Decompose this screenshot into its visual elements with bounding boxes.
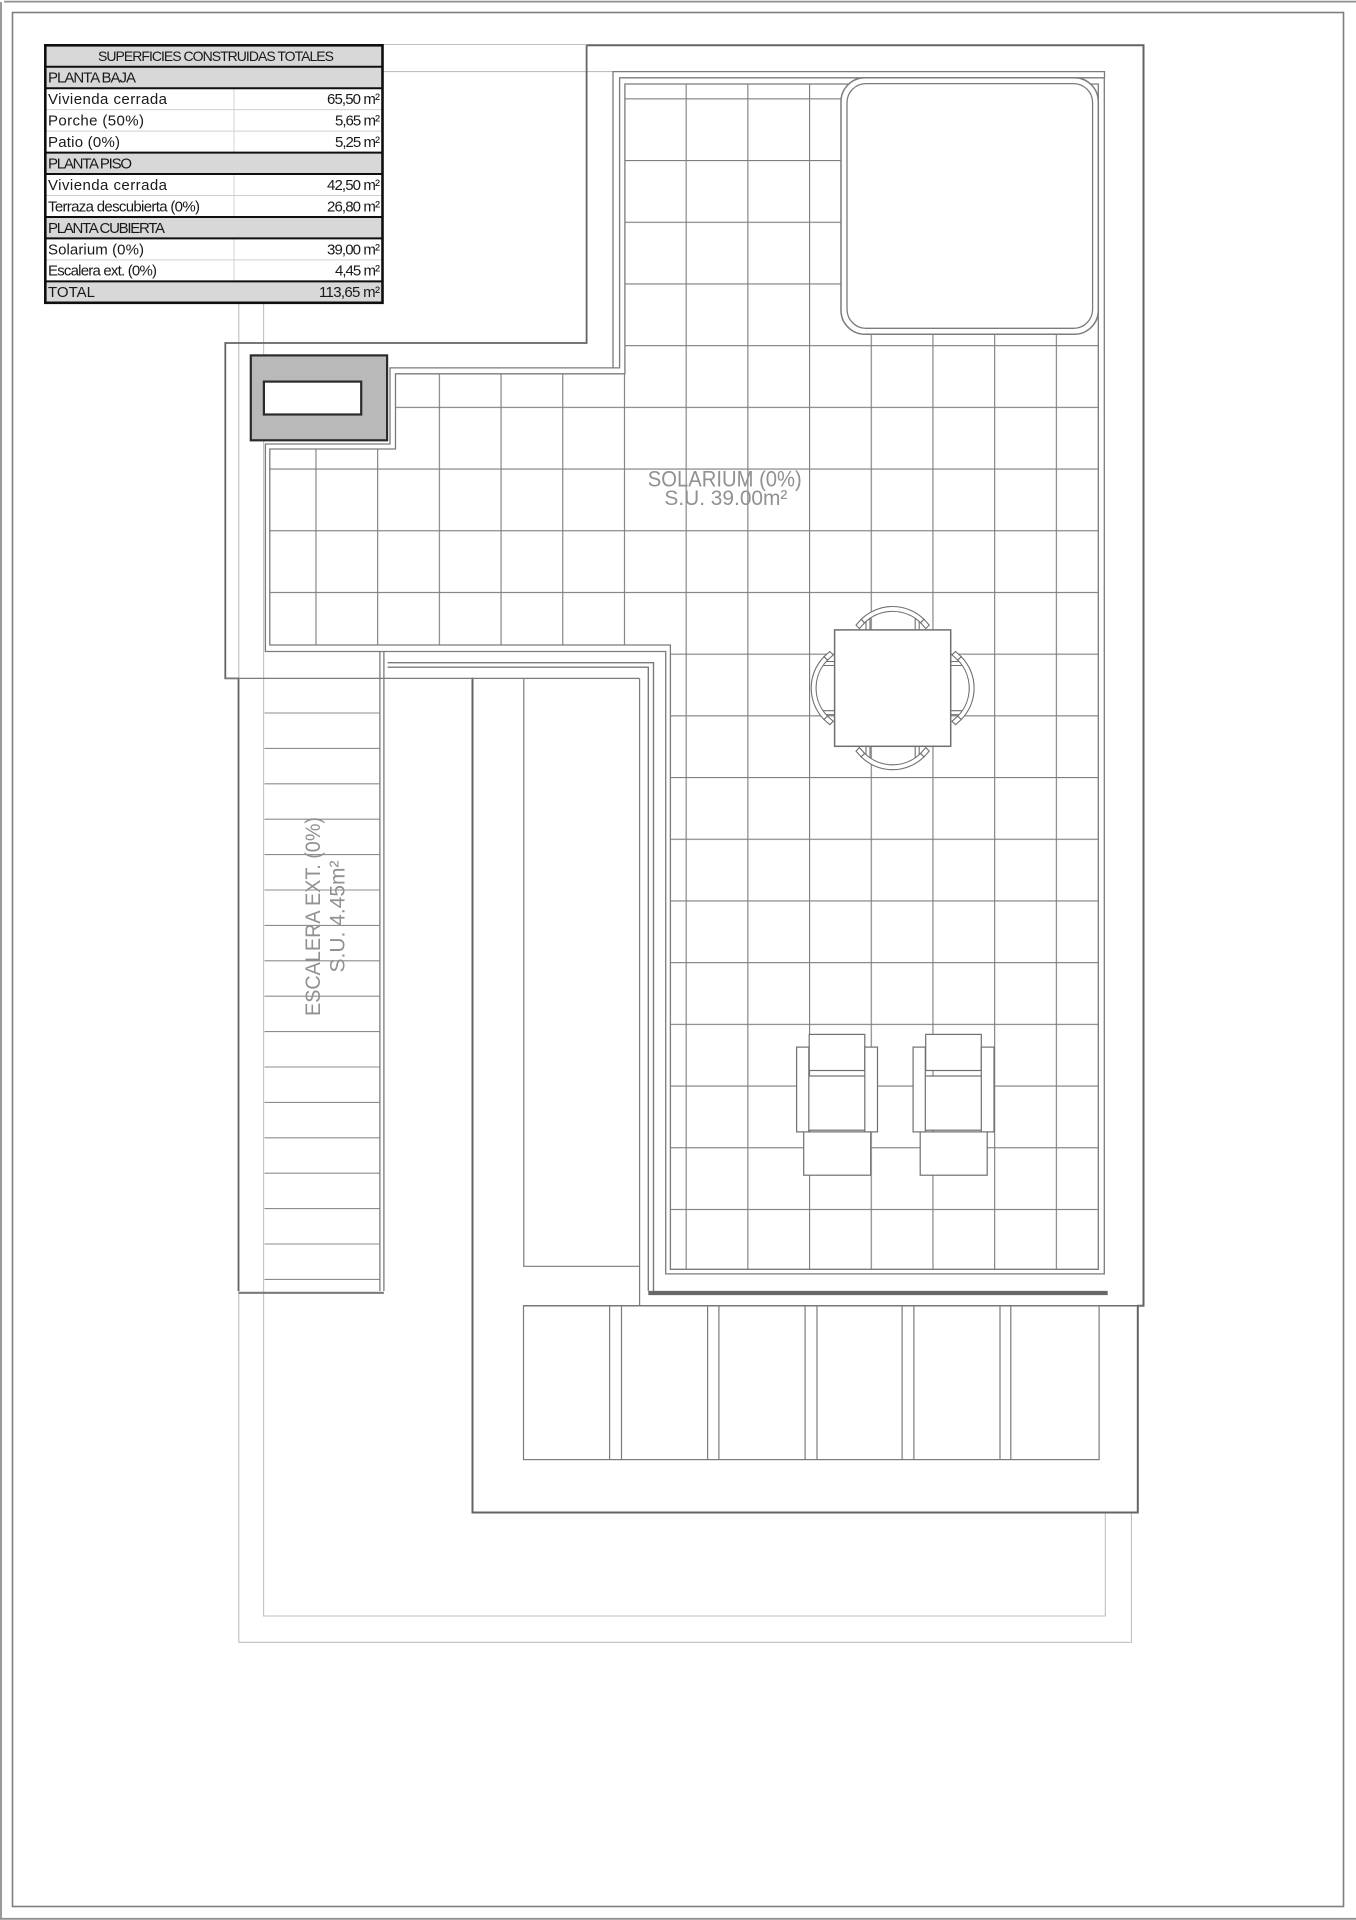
svg-text:Porche (50%): Porche (50%) — [48, 113, 144, 130]
svg-text:5,65 m²: 5,65 m² — [335, 113, 380, 130]
svg-text:Escalera ext. (0%): Escalera ext. (0%) — [48, 263, 157, 280]
svg-text:TOTAL: TOTAL — [48, 284, 95, 301]
svg-text:S.U. 39.00m²: S.U. 39.00m² — [664, 487, 787, 510]
svg-text:SUPERFICIES CONSTRUIDAS TOTALE: SUPERFICIES CONSTRUIDAS TOTALES — [98, 48, 334, 64]
svg-text:PLANTA BAJA: PLANTA BAJA — [48, 70, 136, 87]
svg-text:113,65 m²: 113,65 m² — [319, 284, 380, 301]
svg-text:ESCALERA EXT. (0%): ESCALERA EXT. (0%) — [301, 817, 325, 1016]
svg-text:PLANTA PISO: PLANTA PISO — [48, 156, 132, 173]
svg-text:Vivienda cerrada: Vivienda cerrada — [48, 177, 168, 194]
svg-text:4,45 m²: 4,45 m² — [335, 263, 380, 280]
svg-text:PLANTA CUBIERTA: PLANTA CUBIERTA — [48, 220, 165, 237]
svg-text:39,00 m²: 39,00 m² — [327, 241, 380, 258]
svg-text:26,80 m²: 26,80 m² — [327, 198, 380, 215]
svg-text:42,50 m²: 42,50 m² — [327, 177, 380, 194]
svg-text:5,25 m²: 5,25 m² — [335, 134, 380, 151]
svg-text:Patio (0%): Patio (0%) — [48, 134, 120, 151]
svg-text:Terraza descubierta (0%): Terraza descubierta (0%) — [48, 198, 200, 215]
svg-text:Solarium (0%): Solarium (0%) — [48, 241, 144, 258]
svg-text:S.U. 4.45m²: S.U. 4.45m² — [327, 861, 350, 973]
svg-text:65,50 m²: 65,50 m² — [327, 91, 380, 108]
svg-text:Vivienda cerrada: Vivienda cerrada — [48, 91, 168, 108]
